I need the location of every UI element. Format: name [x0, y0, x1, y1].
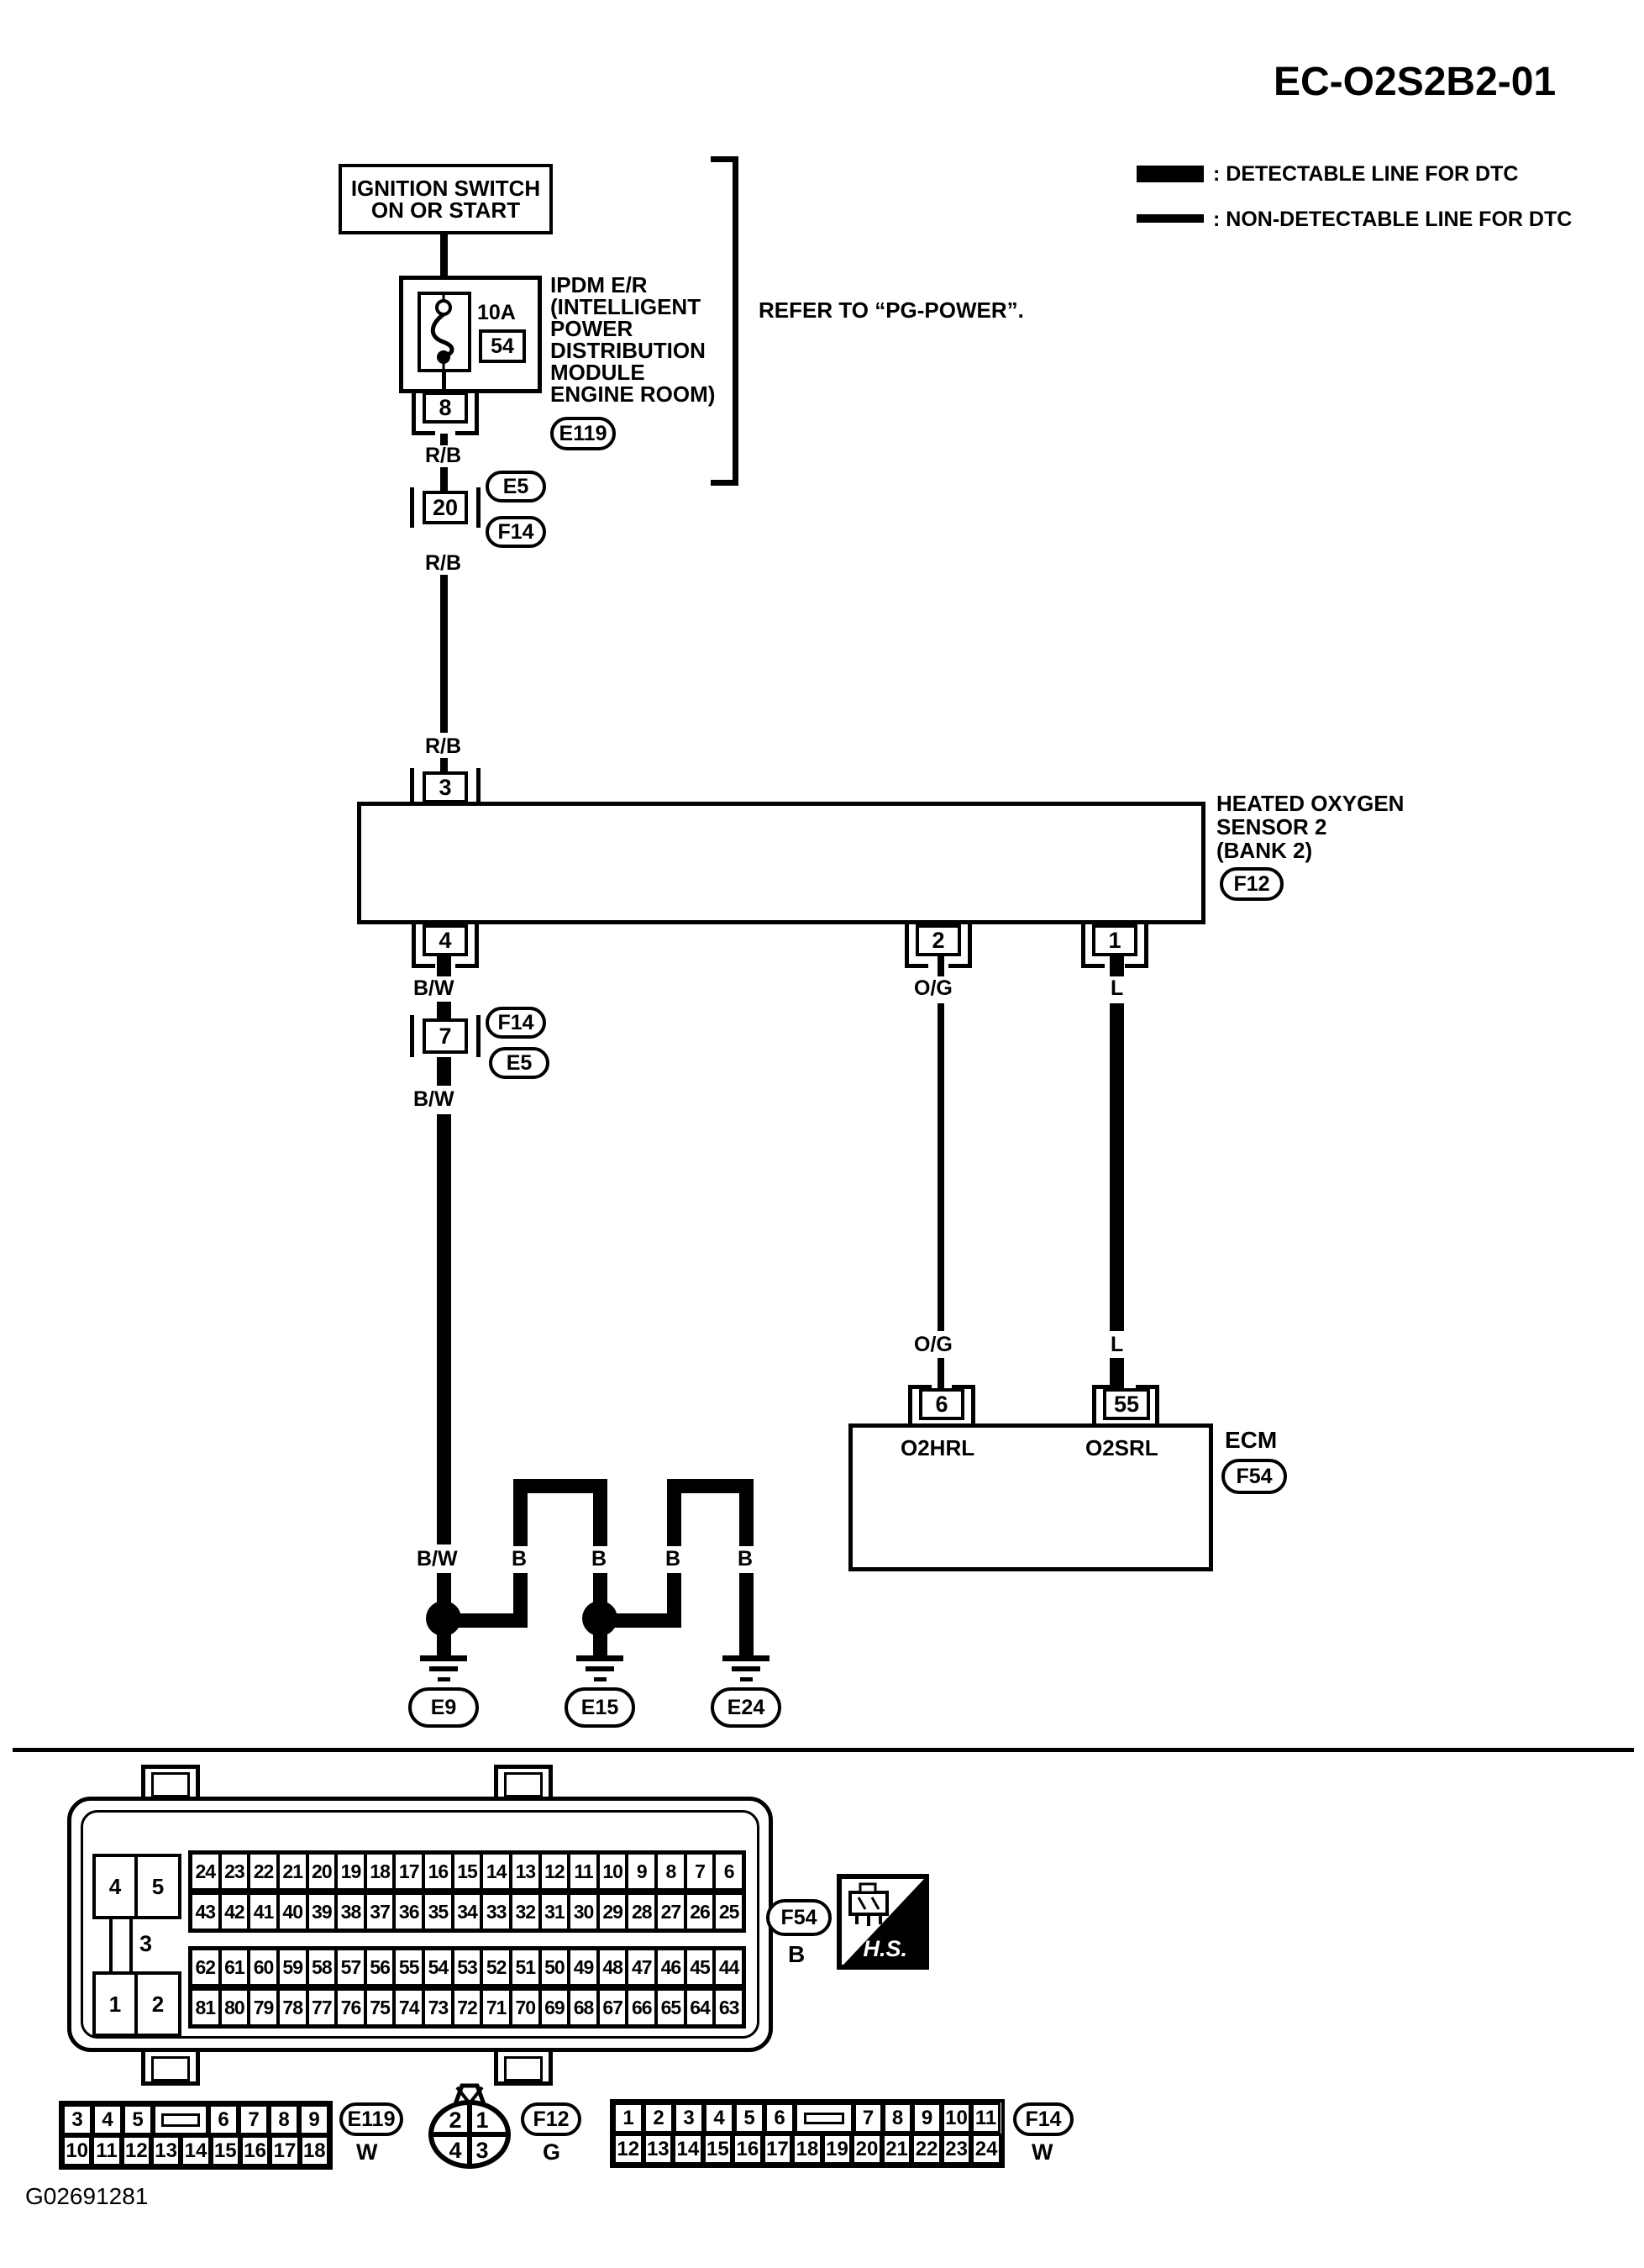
f54-left-cell-3: 3: [139, 1931, 152, 1957]
refer-note: REFER TO “PG-POWER”.: [759, 297, 1024, 324]
ground-symbol-e24-bar2: [732, 1666, 760, 1671]
e119-key-slot: [153, 2104, 208, 2135]
connector55-bracket-left: [1092, 1385, 1096, 1423]
e119-color-code: W: [356, 2139, 377, 2165]
pin-cell: 67: [598, 1989, 628, 2026]
wire-label-rb-1: R/B: [425, 444, 461, 468]
ecm-label: ECM: [1225, 1427, 1277, 1454]
pin-cell: 5: [734, 2102, 764, 2134]
connector2-bracket-right: [968, 924, 972, 968]
f54-left-cell-4: 4: [92, 1854, 138, 1919]
pin-cell: 5: [123, 2104, 153, 2135]
wire-stub-l-1: [1110, 956, 1124, 976]
ground-symbol-e9-bar1: [420, 1655, 467, 1661]
pin-cell: 46: [656, 1949, 685, 1986]
pin-cell: 34: [453, 1893, 482, 1930]
legend-non-detectable-label: : NON-DETECTABLE LINE FOR DTC: [1213, 208, 1572, 232]
e119-view-ref-oval: E119: [339, 2102, 403, 2136]
pin-cell: 8: [883, 2102, 912, 2134]
f54-tab-bottom-left-inner: [151, 2056, 190, 2081]
pin-cell: 10: [942, 2102, 971, 2134]
sensor-name-line: (BANK 2): [1216, 839, 1404, 862]
pin-cell: 43: [191, 1893, 220, 1930]
wire-label-l-1: L: [1111, 976, 1123, 1001]
ipdm-name-line: (INTELLIGENT: [550, 296, 715, 318]
ground-junction-dot-2: [582, 1601, 617, 1636]
pin-cell: 4: [704, 2102, 734, 2134]
wire-label-bw-2: B/W: [413, 1087, 454, 1112]
wire-stub-l-2: [1110, 1358, 1124, 1388]
pin-cell: 38: [336, 1893, 365, 1930]
e119-key-slot-inner: [161, 2113, 200, 2127]
pin8-bracket-left: [412, 392, 416, 435]
ecm-pin55-signal-name: O2SRL: [1085, 1435, 1158, 1461]
pin8-bracket-bottom-right: [455, 431, 479, 435]
pin8-bracket-bottom-left: [412, 431, 435, 435]
ground-loop1-right-upper: [593, 1493, 607, 1546]
ecm-pin6-signal-name: O2HRL: [901, 1435, 974, 1461]
wire-stub-og-1: [938, 956, 944, 976]
pin-cell: 17: [270, 2135, 299, 2166]
f54-tab-bottom-right-inner: [504, 2056, 543, 2081]
pin-cell: 25: [714, 1893, 743, 1930]
pin-cell: 19: [336, 1853, 365, 1890]
connector3-bracket-left: [410, 768, 414, 805]
sensor-name-line: HEATED OXYGEN: [1216, 792, 1404, 815]
pin-cell: 65: [656, 1989, 685, 2026]
wire-stub-bw-3: [437, 1057, 451, 1086]
pin-cell: 81: [191, 1989, 220, 2026]
pin-cell: 8: [269, 2104, 299, 2135]
ground-symbol-e15-bar1: [576, 1655, 623, 1661]
pin-cell: 24: [971, 2134, 1001, 2165]
pin-cell: 40: [278, 1893, 307, 1930]
f14-view-ref-oval: F14: [1013, 2102, 1074, 2136]
wire-label-bw-1: B/W: [413, 976, 454, 1001]
f12-quadrant-3: 3: [475, 2138, 488, 2163]
refer-bracket-vertical: [733, 156, 738, 486]
pin8-bracket-right: [475, 392, 479, 435]
ground-symbol-e24-bar3: [740, 1677, 753, 1681]
hs-harness-side-icon: H.S.: [837, 1874, 929, 1970]
pin-cell: 6: [714, 1853, 743, 1890]
wire-label-og-1: O/G: [914, 976, 953, 1001]
wire-l-long-run: [1110, 1003, 1124, 1331]
refer-bracket-top-cap: [711, 156, 738, 162]
pin-cell: 72: [453, 1989, 482, 2026]
ipdm-name: IPDM E/R(INTELLIGENTPOWERDISTRIBUTIONMOD…: [550, 274, 715, 405]
legend-thick-line-sample: [1137, 166, 1204, 182]
pin-cell: 54: [423, 1949, 453, 1986]
pin-cell: 63: [714, 1989, 743, 2026]
ipdm-name-line: IPDM E/R: [550, 274, 715, 296]
pin-cell: 58: [307, 1949, 337, 1986]
pin-cell: 78: [278, 1989, 307, 2026]
hs-label: H.S.: [863, 1936, 907, 1961]
f54-grid-row-62-44: 62616059585756555453525150494847464544: [188, 1946, 746, 1988]
e119-bottom-row: 101112131415161718: [62, 2135, 329, 2166]
wire-stub-bw-2: [437, 1002, 451, 1018]
ground-loop2-left-upper: [667, 1493, 681, 1546]
connector1-bracket-bl: [1081, 964, 1105, 968]
connector20-bracket-left: [410, 487, 414, 528]
ground-loop1-left-upper: [513, 1493, 528, 1546]
ipdm-name-line: ENGINE ROOM): [550, 383, 715, 405]
junction1-ground-stub: [437, 1634, 451, 1657]
section-divider-line: [13, 1748, 1634, 1752]
pin-cell: 7: [239, 2104, 269, 2135]
pin-cell: 12: [613, 2134, 643, 2165]
wire-label-og-2: O/G: [914, 1333, 953, 1357]
pin-cell: 14: [181, 2135, 210, 2166]
pin-cell: 17: [763, 2134, 793, 2165]
inline-connector-7: 7: [423, 1018, 468, 1054]
connector7-bracket-right: [476, 1015, 481, 1057]
pin-cell: 49: [569, 1949, 598, 1986]
connector2-bracket-br: [948, 964, 972, 968]
f14-top-left-cells: 123456: [613, 2102, 795, 2134]
sensor-pin-1: 1: [1092, 924, 1137, 956]
pin-cell: 42: [220, 1893, 249, 1930]
connector7-bracket-left: [410, 1015, 414, 1057]
pin-cell: 26: [685, 1893, 715, 1930]
pin-cell: 23: [220, 1853, 249, 1890]
f54-tab-top-left-inner: [151, 1772, 190, 1797]
pin-cell: 6: [208, 2104, 239, 2135]
pin-cell: 52: [481, 1949, 511, 1986]
pin-cell: 6: [764, 2102, 795, 2134]
pin-cell: 80: [220, 1989, 249, 2026]
pin-cell: 28: [627, 1893, 656, 1930]
pin-cell: 31: [540, 1893, 570, 1930]
f54-grid-row-43-25: 43424140393837363534333231302928272625: [188, 1891, 746, 1933]
wire-stub-rb-3: [440, 758, 448, 771]
connector1-bracket-br: [1125, 964, 1148, 968]
pin-cell: 27: [656, 1893, 685, 1930]
refer-bracket-bottom-cap: [711, 480, 738, 486]
f12-quadrant-2: 2: [449, 2108, 461, 2133]
f54-color-code: B: [788, 1941, 805, 1968]
connector4-bracket-br: [455, 964, 479, 968]
ground-symbol-e24-bar1: [722, 1655, 769, 1661]
pin-cell: 70: [511, 1989, 540, 2026]
ipdm-name-line: MODULE: [550, 361, 715, 383]
pin-cell: 7: [854, 2102, 883, 2134]
connector1-bracket-left: [1081, 924, 1085, 968]
pin-cell: 24: [191, 1853, 220, 1890]
f54-view-ref-oval: F54: [766, 1899, 832, 1936]
ground-loop2-right-lower: [739, 1573, 754, 1657]
pin-cell: 20: [307, 1853, 337, 1890]
pin-cell: 36: [394, 1893, 423, 1930]
legend-detectable-label: : DETECTABLE LINE FOR DTC: [1213, 162, 1518, 187]
pin-cell: 18: [792, 2134, 822, 2165]
pin-cell: 9: [912, 2102, 942, 2134]
pin-cell: 29: [598, 1893, 628, 1930]
pin-cell: 7: [685, 1853, 715, 1890]
f12-connector-view: 2 1 4 3: [425, 2081, 514, 2171]
f14-top-right-cells: 7891011: [854, 2102, 1001, 2134]
pin-cell: 1: [613, 2102, 643, 2134]
ipdm-connector-ref-oval: E119: [550, 417, 616, 450]
pin-cell: 9: [299, 2104, 329, 2135]
connector2-bracket-left: [905, 924, 909, 968]
wire-rb-long-run: [440, 575, 448, 733]
pin-cell: 22: [249, 1853, 278, 1890]
f14-color-code: W: [1032, 2139, 1053, 2165]
f12-view-ref-oval: F12: [521, 2102, 581, 2136]
e119-top-row: 345 6789: [62, 2104, 329, 2135]
pin-cell: 64: [685, 1989, 715, 2026]
pin-cell: 13: [643, 2134, 674, 2165]
ground-symbol-e9-bar3: [438, 1677, 450, 1681]
connector20-ref-f14-oval: F14: [486, 516, 546, 548]
pin-cell: 18: [300, 2135, 329, 2166]
sensor-name: HEATED OXYGENSENSOR 2(BANK 2): [1216, 792, 1404, 862]
wire-label-bw-3: B/W: [417, 1547, 458, 1571]
legend-thin-line-sample: [1137, 214, 1204, 223]
pin-cell: 61: [220, 1949, 249, 1986]
pin-cell: 48: [598, 1949, 628, 1986]
connector6-bracket-left: [908, 1385, 912, 1423]
ecm-pin-6: 6: [919, 1388, 964, 1420]
f54-grid-row-24-6: 2423222120191817161514131211109876: [188, 1850, 746, 1892]
sensor-name-line: SENSOR 2: [1216, 815, 1404, 839]
wire-label-rb-2: R/B: [425, 551, 461, 576]
fuse-slot-number: 54: [479, 329, 526, 363]
pin-cell: 22: [911, 2134, 942, 2165]
pin-cell: 51: [511, 1949, 540, 1986]
f14-bottom-row: 12131415161718192021222324: [613, 2134, 1001, 2165]
pin-cell: 14: [481, 1853, 511, 1890]
ground-symbol-e15-bar2: [586, 1666, 614, 1671]
pin-cell: 30: [569, 1893, 598, 1930]
inline-connector-20: 20: [423, 491, 468, 524]
ecm-connector-ref-oval: F54: [1221, 1459, 1287, 1494]
wire-label-b-4: B: [738, 1547, 753, 1571]
pin-cell: 4: [92, 2104, 123, 2135]
pin-cell: 32: [511, 1893, 540, 1930]
pin-cell: 56: [365, 1949, 395, 1986]
connector7-ref-f14-oval: F14: [486, 1007, 546, 1039]
pin-cell: 74: [394, 1989, 423, 2026]
ground-loop1-top: [513, 1479, 607, 1493]
pin-cell: 16: [423, 1853, 453, 1890]
pin-cell: 16: [733, 2134, 763, 2165]
connector4-bracket-left: [412, 924, 416, 968]
pin-cell: 16: [240, 2135, 270, 2166]
junction2-ground-stub: [593, 1634, 607, 1657]
pin-cell: 10: [598, 1853, 628, 1890]
ignition-switch-line1: IGNITION SWITCH: [351, 177, 540, 199]
pin-cell: 53: [453, 1949, 482, 1986]
pin-cell: 20: [852, 2134, 882, 2165]
pin-cell: 66: [627, 1989, 656, 2026]
ipdm-name-line: DISTRIBUTION: [550, 339, 715, 361]
wire-stub-bw-1: [437, 956, 451, 976]
sensor-connector-ref-oval: F12: [1220, 867, 1284, 901]
pin-cell: 18: [365, 1853, 395, 1890]
f14-key-slot-inner: [804, 2113, 844, 2124]
pin-cell: 10: [62, 2135, 92, 2166]
fuse-rating-label: 10A: [477, 301, 516, 325]
connector20-bracket-right: [476, 487, 481, 528]
ground-symbol-e9-bar2: [429, 1666, 458, 1671]
e119-top-right-cells: 6789: [208, 2104, 329, 2135]
pin-cell: 21: [882, 2134, 912, 2165]
ignition-switch-line2: ON OR START: [371, 199, 520, 221]
pin-cell: 76: [336, 1989, 365, 2026]
ground-loop2-right-upper: [739, 1493, 754, 1546]
ignition-switch-box: IGNITION SWITCH ON OR START: [339, 164, 553, 234]
pin-cell: 41: [249, 1893, 278, 1930]
connector4-bracket-bl: [412, 964, 435, 968]
pin-cell: 69: [540, 1989, 570, 2026]
pin-cell: 3: [62, 2104, 92, 2135]
ground-ref-e24-oval: E24: [711, 1687, 781, 1728]
f54-grid-row-81-63: 81807978777675747372717069686766656463: [188, 1986, 746, 2029]
wire-og-long-run: [938, 1003, 944, 1331]
ecm-pin-55: 55: [1103, 1388, 1150, 1420]
pin-cell: 50: [540, 1949, 570, 1986]
connector1-bracket-right: [1144, 924, 1148, 968]
pin-cell: 2: [643, 2102, 674, 2134]
pin-cell: 68: [569, 1989, 598, 2026]
pin-cell: 47: [627, 1949, 656, 1986]
sensor-pin-4: 4: [423, 924, 468, 956]
wire-label-b-2: B: [591, 1547, 607, 1571]
pin-cell: 9: [627, 1853, 656, 1890]
f12-quadrant-1: 1: [475, 2108, 488, 2133]
wire-label-b-1: B: [512, 1547, 527, 1571]
pin-cell: 12: [540, 1853, 570, 1890]
f54-left-cell-2: 2: [134, 1971, 181, 2037]
f12-color-code: G: [543, 2139, 560, 2165]
page-title: EC-O2S2B2-01: [1274, 59, 1556, 105]
pin-cell: 19: [822, 2134, 853, 2165]
ground-symbol-e15-bar3: [594, 1677, 607, 1681]
pin-cell: 75: [365, 1989, 395, 2026]
f14-key-slot: [795, 2102, 854, 2134]
pin-cell: 45: [685, 1949, 715, 1986]
wire-ignition-to-ipdm: [440, 234, 448, 279]
wire-fuse-to-pin8: [442, 372, 446, 393]
f54-left-cell-1: 1: [92, 1971, 138, 2037]
connector2-bracket-bl: [905, 964, 928, 968]
fuse-10a-symbol: [419, 293, 468, 369]
f12-quadrant-4: 4: [449, 2138, 461, 2163]
pin-cell: 11: [569, 1853, 598, 1890]
wiring-diagram-page: EC-O2S2B2-01 : DETECTABLE LINE FOR DTC :…: [0, 0, 1644, 2268]
ground-ref-e9-oval: E9: [408, 1687, 479, 1728]
pin-cell: 35: [423, 1893, 453, 1930]
pin-cell: 59: [278, 1949, 307, 1986]
connector55-bracket-right: [1155, 1385, 1159, 1423]
wire-stub-og-2: [938, 1358, 944, 1388]
pin-cell: 8: [656, 1853, 685, 1890]
f54-key-channel: [109, 1916, 133, 1975]
pin-cell: 77: [307, 1989, 337, 2026]
pin-cell: 17: [394, 1853, 423, 1890]
pin-cell: 23: [942, 2134, 972, 2165]
ipdm-pin-8: 8: [423, 392, 468, 424]
pin-cell: 57: [336, 1949, 365, 1986]
connector4-bracket-right: [475, 924, 479, 968]
pin-cell: 73: [423, 1989, 453, 2026]
e119-top-left-cells: 345: [62, 2104, 153, 2135]
pin-cell: 37: [365, 1893, 395, 1930]
connector3-bracket-right: [476, 768, 481, 805]
pin-cell: 44: [714, 1949, 743, 1986]
pin-cell: 15: [211, 2135, 240, 2166]
connector20-ref-e5-oval: E5: [486, 471, 546, 503]
connector7-ref-e5-oval: E5: [489, 1047, 549, 1079]
pin-cell: 12: [122, 2135, 151, 2166]
sensor-pin-3: 3: [423, 771, 468, 803]
connector6-bracket-right: [971, 1385, 975, 1423]
pin-cell: 13: [511, 1853, 540, 1890]
wire-label-l-2: L: [1111, 1333, 1123, 1357]
sensor-pin-2: 2: [916, 924, 961, 956]
pin-cell: 11: [971, 2102, 1001, 2134]
ipdm-name-line: POWER: [550, 318, 715, 339]
ground-loop2-top: [667, 1479, 754, 1493]
pin-cell: 21: [278, 1853, 307, 1890]
pin-cell: 11: [92, 2135, 121, 2166]
pin-cell: 55: [394, 1949, 423, 1986]
pin-cell: 33: [481, 1893, 511, 1930]
pin-cell: 62: [191, 1949, 220, 1986]
pin-cell: 15: [703, 2134, 733, 2165]
pin-cell: 14: [673, 2134, 703, 2165]
wire-bw-long-run: [437, 1114, 451, 1544]
pin-cell: 39: [307, 1893, 337, 1930]
pin-cell: 3: [674, 2102, 704, 2134]
pin-cell: 60: [249, 1949, 278, 1986]
f54-left-cell-5: 5: [134, 1854, 181, 1919]
pin-cell: 15: [453, 1853, 482, 1890]
pin-cell: 71: [481, 1989, 511, 2026]
pin-cell: 79: [249, 1989, 278, 2026]
wire-label-b-3: B: [665, 1547, 680, 1571]
ground-ref-e15-oval: E15: [565, 1687, 635, 1728]
wire-label-rb-3: R/B: [425, 734, 461, 759]
figure-code: G02691281: [25, 2183, 148, 2210]
heated-oxygen-sensor-box: [357, 802, 1205, 924]
f14-top-row: 123456 7891011: [613, 2102, 1001, 2134]
pin-cell: 13: [151, 2135, 181, 2166]
ground-junction-dot-1: [426, 1601, 461, 1636]
wire-stub-rb-2: [440, 467, 448, 491]
f54-tab-top-right-inner: [504, 1772, 543, 1797]
